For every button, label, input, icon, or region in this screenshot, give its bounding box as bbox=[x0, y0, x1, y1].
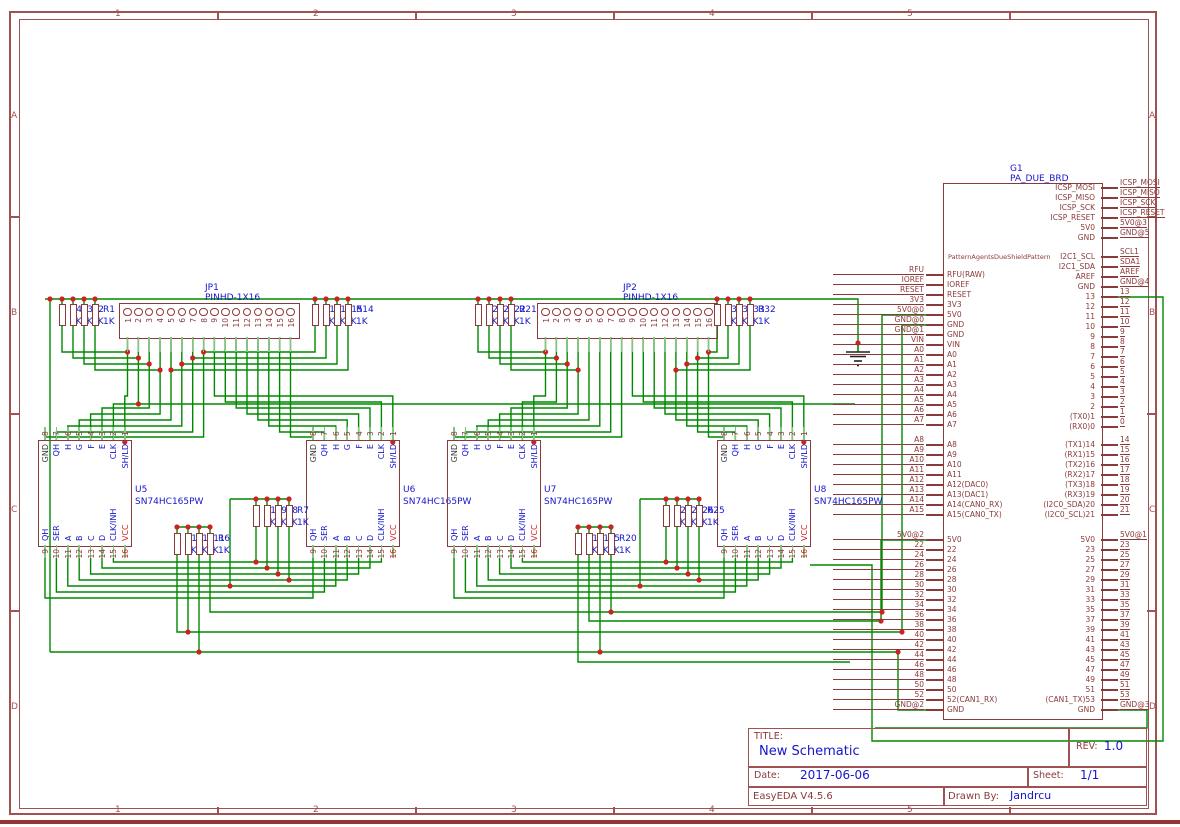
resistor-r5[interactable] bbox=[597, 533, 604, 555]
board-pin-name: 23 bbox=[963, 545, 1095, 554]
board-pin-name: 8 bbox=[963, 342, 1095, 351]
board-pin-line bbox=[1101, 396, 1118, 397]
board-pin-name: 7 bbox=[963, 352, 1095, 361]
ic-pin-number: 16 bbox=[389, 549, 398, 559]
board-net-label[interactable]: 48 bbox=[833, 670, 924, 680]
resistor-r9[interactable] bbox=[264, 505, 271, 527]
resistor-r28[interactable] bbox=[663, 505, 670, 527]
board-net-label[interactable]: 5V0@1 bbox=[1120, 530, 1147, 540]
board-net-label[interactable]: SCL1 bbox=[1120, 247, 1139, 257]
board-net-label[interactable]: ICSP_MISO bbox=[1120, 188, 1160, 198]
header-pin-number: 6 bbox=[596, 318, 605, 323]
board-pin-line bbox=[926, 629, 943, 630]
board-net-label[interactable]: 39 bbox=[1120, 620, 1130, 630]
resistor-r13[interactable] bbox=[174, 533, 181, 555]
resistor-refdes[interactable]: R7 bbox=[297, 506, 309, 516]
board-net-label[interactable]: A11 bbox=[833, 465, 924, 475]
board-pin-name: 50 bbox=[947, 685, 957, 694]
resistor-r32[interactable] bbox=[747, 304, 754, 326]
ic-pin-name: VCC bbox=[121, 524, 130, 541]
board-net-label[interactable]: 28 bbox=[833, 570, 924, 580]
ic-pin-name: E bbox=[366, 444, 375, 449]
board-net-label[interactable]: 50 bbox=[833, 680, 924, 690]
board-pin-name: 32 bbox=[947, 595, 957, 604]
rev-cell-divider bbox=[1068, 728, 1070, 766]
board-pin-line bbox=[926, 484, 943, 485]
resistor-r12[interactable] bbox=[185, 533, 192, 555]
header-pin-stub bbox=[653, 337, 655, 352]
ic-pin-name: D bbox=[98, 535, 107, 541]
board-net-label[interactable]: 14 bbox=[1120, 435, 1130, 445]
board-net-label[interactable]: GND@4 bbox=[1120, 277, 1149, 287]
board-net-label[interactable]: 21 bbox=[1120, 505, 1130, 515]
board-net-label[interactable]: 25 bbox=[1120, 550, 1130, 560]
ic-part[interactable]: SN74HC165PW bbox=[544, 497, 612, 507]
board-net-label[interactable]: 17 bbox=[1120, 465, 1130, 475]
resistor-r15[interactable] bbox=[334, 304, 341, 326]
board-pin-line bbox=[926, 274, 943, 275]
ic-pin-number: 1 bbox=[121, 431, 130, 436]
board-net-label[interactable]: 2 bbox=[1120, 397, 1125, 407]
board-pin-name: (I2C0_SCL)21 bbox=[963, 510, 1095, 519]
board-pin-name: VIN bbox=[947, 340, 960, 349]
ic-pin-number: 2 bbox=[377, 431, 386, 436]
title-block-divider-2 bbox=[748, 786, 1147, 788]
board-pin-name: 4 bbox=[963, 382, 1095, 391]
ic-pin-number: 3 bbox=[366, 431, 375, 436]
board-net-label[interactable]: 22 bbox=[833, 540, 924, 550]
ic-pin-name: A bbox=[743, 536, 752, 541]
board-net-label[interactable]: 49 bbox=[1120, 670, 1130, 680]
ic-pin-name: CLK bbox=[788, 444, 797, 459]
board-net-label[interactable]: 5V0@2 bbox=[833, 530, 924, 540]
board-net-label[interactable]: A7 bbox=[833, 415, 924, 425]
board-pin-line bbox=[926, 539, 943, 540]
ic-pin-name: QH bbox=[52, 444, 61, 456]
board-net-label[interactable]: 20 bbox=[1120, 495, 1130, 505]
board-pin-line bbox=[926, 699, 943, 700]
date-label: Date: bbox=[754, 770, 780, 781]
ic-pin-name: CLK bbox=[109, 444, 118, 459]
board-net-label[interactable]: SDA1 bbox=[1120, 257, 1140, 267]
ic-pin-number: 6 bbox=[64, 431, 73, 436]
board-net-label[interactable]: GND@5 bbox=[1120, 228, 1149, 238]
board-net-label[interactable]: A10 bbox=[833, 455, 924, 465]
ic-pin-number: 14 bbox=[507, 549, 516, 559]
board-pin-name: 40 bbox=[947, 635, 957, 644]
board-net-label[interactable]: 45 bbox=[1120, 650, 1130, 660]
resistor-r34[interactable] bbox=[725, 304, 732, 326]
board-pin-name: 22 bbox=[947, 545, 957, 554]
ic-pin-name: B bbox=[75, 536, 84, 542]
board-pin-name: 5V0 bbox=[963, 535, 1095, 544]
board-net-label[interactable]: 44 bbox=[833, 650, 924, 660]
header-pin-circle bbox=[628, 308, 636, 316]
ic-pin-name: QH bbox=[461, 444, 470, 456]
resistor-refdes[interactable]: R14 bbox=[356, 305, 374, 315]
board-net-label[interactable]: ICSP_MOSI bbox=[1120, 178, 1160, 188]
board-net-label[interactable]: 34 bbox=[833, 600, 924, 610]
resistor-r20[interactable] bbox=[608, 533, 615, 555]
board-pin-line bbox=[1101, 276, 1118, 277]
board-pin-line bbox=[926, 394, 943, 395]
board-net-label[interactable]: 3V3 bbox=[833, 295, 924, 305]
board-net-label[interactable]: 5V0@0 bbox=[833, 305, 924, 315]
board-net-label[interactable]: 19 bbox=[1120, 485, 1130, 495]
board-pin-line bbox=[1101, 669, 1118, 670]
resistor-r14[interactable] bbox=[345, 304, 352, 326]
resistor-r17[interactable] bbox=[312, 304, 319, 326]
resistor-refdes[interactable]: R25 bbox=[707, 506, 725, 516]
board-pin-name: 33 bbox=[963, 595, 1095, 604]
board-pin-name: 28 bbox=[947, 575, 957, 584]
header-pin-stub bbox=[127, 337, 129, 352]
resistor-value[interactable]: 1K bbox=[619, 546, 631, 556]
board-pin-name: 46 bbox=[947, 665, 957, 674]
resistor-r1[interactable] bbox=[92, 304, 99, 326]
board-net-label[interactable]: 5 bbox=[1120, 367, 1125, 377]
board-pin-name: ICSP_MOSI bbox=[963, 183, 1095, 192]
resistor-r10[interactable] bbox=[253, 505, 260, 527]
date-value[interactable]: 2017-06-06 bbox=[800, 768, 870, 782]
ic-pin-name: E bbox=[777, 444, 786, 449]
board-pin-name: 36 bbox=[947, 615, 957, 624]
header-pin-circle bbox=[123, 308, 131, 316]
resistor-value[interactable]: 1K bbox=[103, 317, 115, 327]
board-pin-name: (RX1)15 bbox=[963, 450, 1095, 459]
resistor-r4[interactable] bbox=[59, 304, 66, 326]
resistor-r6[interactable] bbox=[207, 533, 214, 555]
schematic-canvas[interactable]: { "frame": { "columns": ["1","2","3","4"… bbox=[0, 0, 1180, 827]
board-pin-name: 42 bbox=[947, 645, 957, 654]
resistor-refdes[interactable]: R20 bbox=[619, 534, 637, 544]
board-pin-line bbox=[926, 649, 943, 650]
board-pin-line bbox=[926, 609, 943, 610]
ic-pin-number: 5 bbox=[75, 431, 84, 436]
board-net-label[interactable]: 9 bbox=[1120, 327, 1125, 337]
header-pin-stub bbox=[148, 337, 150, 352]
resistor-r27[interactable] bbox=[674, 505, 681, 527]
ic-pin-name: CLK/INH bbox=[109, 509, 118, 541]
board-net-label[interactable]: 4 bbox=[1120, 377, 1125, 387]
rev-value[interactable]: 1.0 bbox=[1104, 739, 1123, 753]
header-pin-stub bbox=[170, 337, 172, 352]
sheet-label: Sheet: bbox=[1033, 770, 1064, 781]
resistor-value[interactable]: 1K bbox=[707, 518, 719, 528]
board-refdes[interactable]: G1 bbox=[1010, 164, 1023, 174]
resistor-r7[interactable] bbox=[286, 505, 293, 527]
board-net-label[interactable]: 29 bbox=[1120, 570, 1130, 580]
board-pin-line bbox=[926, 619, 943, 620]
header-pin-stub bbox=[632, 337, 634, 352]
board-pin-name: 11 bbox=[963, 312, 1095, 321]
ic-pin-number: 11 bbox=[473, 549, 482, 559]
board-net-label[interactable]: A15 bbox=[833, 505, 924, 515]
board-pin-name: 43 bbox=[963, 645, 1095, 654]
board-pin-line bbox=[1101, 336, 1118, 337]
board-net-label[interactable]: 33 bbox=[1120, 590, 1130, 600]
resistor-r2[interactable] bbox=[81, 304, 88, 326]
ic-pin-number: 9 bbox=[309, 549, 318, 554]
board-pin-line bbox=[926, 709, 943, 710]
resistor-refdes[interactable]: R1 bbox=[103, 305, 115, 315]
resistor-r33[interactable] bbox=[736, 304, 743, 326]
board-pin-name: AREF bbox=[963, 272, 1095, 281]
board-pin-line bbox=[1101, 406, 1118, 407]
board-pin-line bbox=[1101, 296, 1118, 297]
resistor-value[interactable]: 1K bbox=[519, 317, 531, 327]
ic-refdes[interactable]: U6 bbox=[403, 485, 415, 495]
board-pin-line bbox=[1101, 266, 1118, 267]
schematic-title[interactable]: New Schematic bbox=[759, 744, 860, 759]
resistor-value[interactable]: 1K bbox=[356, 317, 368, 327]
board-pin-name: 30 bbox=[947, 585, 957, 594]
resistor-r22[interactable] bbox=[497, 304, 504, 326]
board-net-label[interactable]: 8 bbox=[1120, 337, 1125, 347]
ic-refdes[interactable]: U8 bbox=[814, 485, 826, 495]
header-pin-number: 1 bbox=[124, 318, 133, 323]
ic-pin-number: 7 bbox=[320, 431, 329, 436]
board-pin-line bbox=[1101, 649, 1118, 650]
board-net-label[interactable]: 18 bbox=[1120, 475, 1130, 485]
board-pin-name: GND bbox=[947, 330, 964, 339]
board-net-label[interactable]: 0 bbox=[1120, 417, 1125, 427]
header-refdes[interactable]: JP1 bbox=[205, 283, 219, 293]
board-pin-line bbox=[1101, 256, 1118, 257]
board-net-label[interactable]: 37 bbox=[1120, 610, 1130, 620]
board-pin-name: A11 bbox=[947, 470, 962, 479]
board-pin-name: (TX2)16 bbox=[963, 460, 1095, 469]
board-net-label[interactable]: A5 bbox=[833, 395, 924, 405]
resistor-r25[interactable] bbox=[696, 505, 703, 527]
header-pin-number: 10 bbox=[221, 318, 230, 328]
resistor-refdes[interactable]: R6 bbox=[218, 534, 230, 544]
board-net-label[interactable]: 38 bbox=[833, 620, 924, 630]
board-net-label[interactable]: 23 bbox=[1120, 540, 1130, 550]
board-pin-name: 3 bbox=[963, 392, 1095, 401]
ic-pin-number: 4 bbox=[87, 431, 96, 436]
board-pin-name: 44 bbox=[947, 655, 957, 664]
ic-pin-number: 4 bbox=[496, 431, 505, 436]
board-net-label[interactable]: 47 bbox=[1120, 660, 1130, 670]
header-pin-number: 3 bbox=[145, 318, 154, 323]
board-pin-name: 5V0 bbox=[963, 223, 1095, 232]
ic-pin-name: QH bbox=[320, 444, 329, 456]
board-net-label[interactable]: 30 bbox=[833, 580, 924, 590]
board-net-label[interactable]: A13 bbox=[833, 485, 924, 495]
board-pin-name: 48 bbox=[947, 675, 957, 684]
board-pin-line bbox=[926, 689, 943, 690]
resistor-r24[interactable] bbox=[475, 304, 482, 326]
board-net-label[interactable]: A0 bbox=[833, 345, 924, 355]
header-pin-stub bbox=[225, 337, 227, 352]
board-net-label[interactable]: 15 bbox=[1120, 445, 1130, 455]
ic-pin-name: C bbox=[766, 535, 775, 541]
board-net-label[interactable]: 53 bbox=[1120, 690, 1130, 700]
header-refdes[interactable]: JP2 bbox=[623, 283, 637, 293]
board-pin-name: A4 bbox=[947, 390, 957, 399]
board-pin-name: 13 bbox=[963, 292, 1095, 301]
board-net-label[interactable]: 51 bbox=[1120, 680, 1130, 690]
ic-pin-number: 9 bbox=[450, 549, 459, 554]
header-pin-stub bbox=[203, 337, 205, 352]
ic-pin-number: 3 bbox=[507, 431, 516, 436]
board-net-label[interactable]: 5V0@3 bbox=[1120, 218, 1147, 228]
board-net-label[interactable]: 26 bbox=[833, 560, 924, 570]
board-net-label[interactable]: 41 bbox=[1120, 630, 1130, 640]
ic-pin-number: 2 bbox=[109, 431, 118, 436]
board-net-label[interactable]: ICSP_RESET bbox=[1120, 208, 1165, 218]
board-pin-line bbox=[1101, 629, 1118, 630]
board-net-label[interactable]: 10 bbox=[1120, 317, 1130, 327]
ic-pin-number: 4 bbox=[766, 431, 775, 436]
board-net-label[interactable]: 42 bbox=[833, 640, 924, 650]
board-net-label[interactable]: 13 bbox=[1120, 287, 1130, 297]
board-pin-line bbox=[926, 364, 943, 365]
board-net-label[interactable]: A1 bbox=[833, 355, 924, 365]
resistor-r11[interactable] bbox=[196, 533, 203, 555]
board-pin-line bbox=[926, 444, 943, 445]
resistor-value[interactable]: 1K bbox=[218, 546, 230, 556]
board-pin-name: ICSP_RESET bbox=[963, 213, 1095, 222]
resistor-refdes[interactable]: R32 bbox=[758, 305, 776, 315]
resistor-r26[interactable] bbox=[685, 505, 692, 527]
board-net-label[interactable]: VIN bbox=[833, 335, 924, 345]
resistor-value[interactable]: 1K bbox=[758, 317, 770, 327]
resistor-r8[interactable] bbox=[275, 505, 282, 527]
header-part[interactable]: PINHD-1X16 bbox=[623, 293, 678, 303]
board-pin-line bbox=[1101, 639, 1118, 640]
ic-refdes[interactable]: U7 bbox=[544, 485, 556, 495]
ic-pin-number: 8 bbox=[720, 431, 729, 436]
ic-pin-name: H bbox=[743, 444, 752, 450]
ic-pin-number: 15 bbox=[109, 549, 118, 559]
board-net-label[interactable]: ICSP_SCK bbox=[1120, 198, 1155, 208]
board-net-label[interactable]: 36 bbox=[833, 610, 924, 620]
board-net-label[interactable]: 24 bbox=[833, 550, 924, 560]
ic-pin-number: 6 bbox=[473, 431, 482, 436]
board-pin-name: GND bbox=[963, 282, 1095, 291]
board-net-label[interactable]: 32 bbox=[833, 590, 924, 600]
ic-pin-name: SER bbox=[731, 525, 740, 541]
header-pin-number: 13 bbox=[672, 318, 681, 328]
board-pin-line bbox=[1101, 366, 1118, 367]
board-net-label[interactable]: GND@0 bbox=[833, 315, 924, 325]
board-pin-line bbox=[926, 344, 943, 345]
board-pin-line bbox=[1101, 659, 1118, 660]
board-net-label[interactable]: GND@1 bbox=[833, 325, 924, 335]
resistor-r23[interactable] bbox=[486, 304, 493, 326]
board-net-label[interactable]: A3 bbox=[833, 375, 924, 385]
header-pin-number: 13 bbox=[254, 318, 263, 328]
board-pin-name: (TX0)1 bbox=[963, 412, 1095, 421]
board-net-label[interactable]: 43 bbox=[1120, 640, 1130, 650]
board-pin-line bbox=[926, 464, 943, 465]
board-pin-line bbox=[1101, 549, 1118, 550]
ic-pin-name: E bbox=[507, 444, 516, 449]
board-pin-line bbox=[926, 384, 943, 385]
board-net-label[interactable]: A4 bbox=[833, 385, 924, 395]
resistor-r18[interactable] bbox=[586, 533, 593, 555]
board-net-label[interactable]: AREF bbox=[1120, 267, 1139, 277]
board-pin-line bbox=[1101, 426, 1118, 427]
board-pin-line bbox=[926, 559, 943, 560]
ic-pin-name: B bbox=[343, 536, 352, 542]
sheet-value[interactable]: 1/1 bbox=[1080, 768, 1099, 782]
board-net-label[interactable]: 31 bbox=[1120, 580, 1130, 590]
board-net-label[interactable]: A14 bbox=[833, 495, 924, 505]
board-net-label[interactable]: 1 bbox=[1120, 407, 1125, 417]
board-net-label[interactable]: 40 bbox=[833, 630, 924, 640]
drawn-by-value[interactable]: Jandrcu bbox=[1010, 789, 1051, 802]
title-label: TITLE: bbox=[754, 731, 783, 742]
board-net-label[interactable]: 12 bbox=[1120, 297, 1130, 307]
board-pin-name: GND bbox=[963, 705, 1095, 714]
resistor-r19[interactable] bbox=[575, 533, 582, 555]
board-net-label[interactable]: 3 bbox=[1120, 387, 1125, 397]
board-net-label[interactable]: A2 bbox=[833, 365, 924, 375]
header-pin-stub bbox=[664, 337, 666, 352]
resistor-r21[interactable] bbox=[508, 304, 515, 326]
board-net-label[interactable]: 6 bbox=[1120, 357, 1125, 367]
ic-refdes[interactable]: U5 bbox=[135, 485, 147, 495]
board-net-label[interactable]: A9 bbox=[833, 445, 924, 455]
board-net-label[interactable]: 46 bbox=[833, 660, 924, 670]
header-pin-number: 4 bbox=[156, 318, 165, 323]
resistor-value[interactable]: 1K bbox=[297, 518, 309, 528]
board-pin-line bbox=[1101, 386, 1118, 387]
ic-pin-name: H bbox=[332, 444, 341, 450]
header-part[interactable]: PINHD-1X16 bbox=[205, 293, 260, 303]
tool-version: EasyEDA V4.5.6 bbox=[753, 791, 833, 802]
board-net-label[interactable]: 35 bbox=[1120, 600, 1130, 610]
ic-pin-number: 13 bbox=[496, 549, 505, 559]
board-net-label[interactable]: 7 bbox=[1120, 347, 1125, 357]
ic-pin-name: E bbox=[98, 444, 107, 449]
resistor-r3[interactable] bbox=[70, 304, 77, 326]
board-pin-name: (CAN1_TX)53 bbox=[963, 695, 1095, 704]
board-net-label[interactable]: RESET bbox=[833, 285, 924, 295]
ic-pin-name: GND bbox=[41, 444, 50, 462]
resistor-r16[interactable] bbox=[323, 304, 330, 326]
board-net-label[interactable]: A6 bbox=[833, 405, 924, 415]
board-pin-name: ICSP_MISO bbox=[963, 193, 1095, 202]
board-net-label[interactable]: 52 bbox=[833, 690, 924, 700]
board-net-label[interactable]: 11 bbox=[1120, 307, 1130, 317]
resistor-refdes[interactable]: R21 bbox=[519, 305, 537, 315]
header-pin-stub bbox=[610, 337, 612, 352]
board-net-label[interactable]: A12 bbox=[833, 475, 924, 485]
board-net-label[interactable]: GND@2 bbox=[833, 700, 924, 710]
board-pin-name: (I2C0_SDA)20 bbox=[963, 500, 1095, 509]
header-pin-number: 2 bbox=[552, 318, 561, 323]
board-pin-name: 45 bbox=[963, 655, 1095, 664]
ic-pin-number: 16 bbox=[530, 549, 539, 559]
board-pin-line bbox=[926, 374, 943, 375]
ic-pin-number: 10 bbox=[461, 549, 470, 559]
board-net-label[interactable]: GND@3 bbox=[1120, 700, 1149, 710]
ic-pin-number: 15 bbox=[377, 549, 386, 559]
ic-part[interactable]: SN74HC165PW bbox=[135, 497, 203, 507]
board-net-label[interactable]: 16 bbox=[1120, 455, 1130, 465]
board-net-label[interactable]: A8 bbox=[833, 435, 924, 445]
resistor-r35[interactable] bbox=[714, 304, 721, 326]
board-net-label[interactable]: 27 bbox=[1120, 560, 1130, 570]
board-net-label[interactable]: RFU bbox=[833, 265, 924, 275]
board-pin-name: 37 bbox=[963, 615, 1095, 624]
board-net-label[interactable]: IOREF bbox=[833, 275, 924, 285]
ic-pin-name: H bbox=[64, 444, 73, 450]
